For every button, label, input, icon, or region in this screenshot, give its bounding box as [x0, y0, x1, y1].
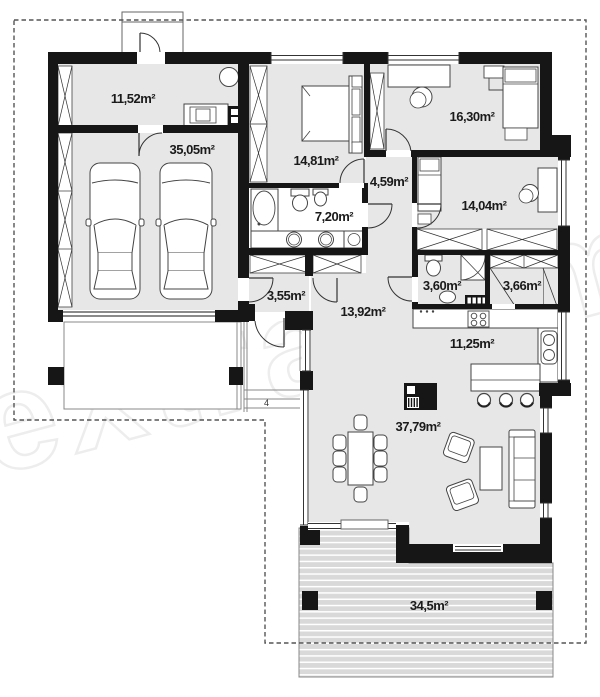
svg-text:11,52m²: 11,52m² — [111, 91, 156, 106]
svg-text:11,25m²: 11,25m² — [450, 336, 495, 351]
svg-text:4,59m²: 4,59m² — [370, 174, 409, 189]
svg-text:35,05m²: 35,05m² — [170, 142, 216, 157]
svg-text:7,20m²: 7,20m² — [315, 209, 354, 224]
svg-text:13,92m²: 13,92m² — [341, 304, 387, 319]
svg-text:3,55m²: 3,55m² — [267, 288, 306, 303]
svg-text:4: 4 — [264, 398, 269, 408]
svg-text:14,04m²: 14,04m² — [462, 198, 508, 213]
svg-text:16,30m²: 16,30m² — [450, 109, 496, 124]
svg-text:3,60m²: 3,60m² — [423, 278, 462, 293]
svg-text:3,66m²: 3,66m² — [503, 278, 542, 293]
svg-text:34,5m²: 34,5m² — [410, 598, 449, 613]
svg-text:37,79m²: 37,79m² — [396, 419, 442, 434]
svg-text:14,81m²: 14,81m² — [294, 153, 340, 168]
